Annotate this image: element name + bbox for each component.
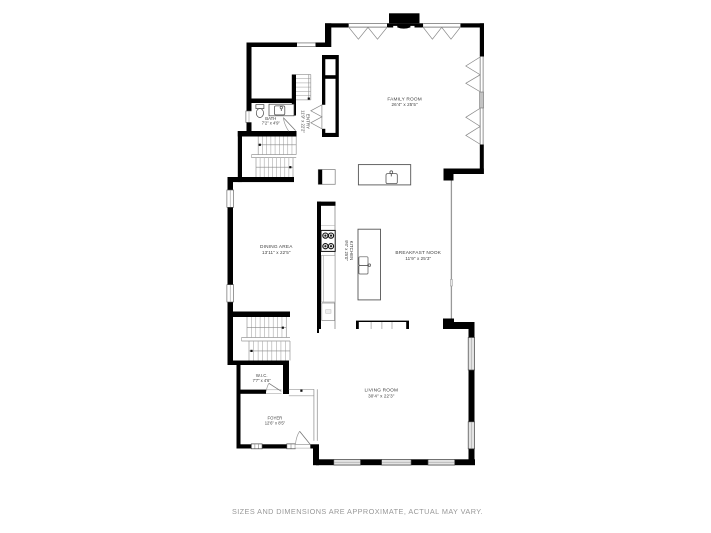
svg-text:SIZES AND DIMENSIONS ARE APPRO: SIZES AND DIMENSIONS ARE APPROXIMATE, AC…	[232, 507, 483, 516]
svg-text:12'6" x 8'5": 12'6" x 8'5"	[265, 421, 286, 426]
svg-text:30'4" x 22'3": 30'4" x 22'3"	[368, 393, 395, 398]
svg-text:7'7" x 4'6": 7'7" x 4'6"	[253, 378, 272, 383]
svg-text:7'2" x 4'9": 7'2" x 4'9"	[262, 121, 281, 126]
svg-text:26'4" x 25'5": 26'4" x 25'5"	[391, 102, 418, 107]
svg-text:9'6" x 25'0": 9'6" x 25'0"	[344, 240, 349, 261]
svg-text:11'9" x 25'3": 11'9" x 25'3"	[405, 256, 431, 261]
svg-text:11'9" x 22'2": 11'9" x 22'2"	[301, 110, 306, 133]
svg-text:13'11" x 22'5": 13'11" x 22'5"	[262, 250, 291, 255]
